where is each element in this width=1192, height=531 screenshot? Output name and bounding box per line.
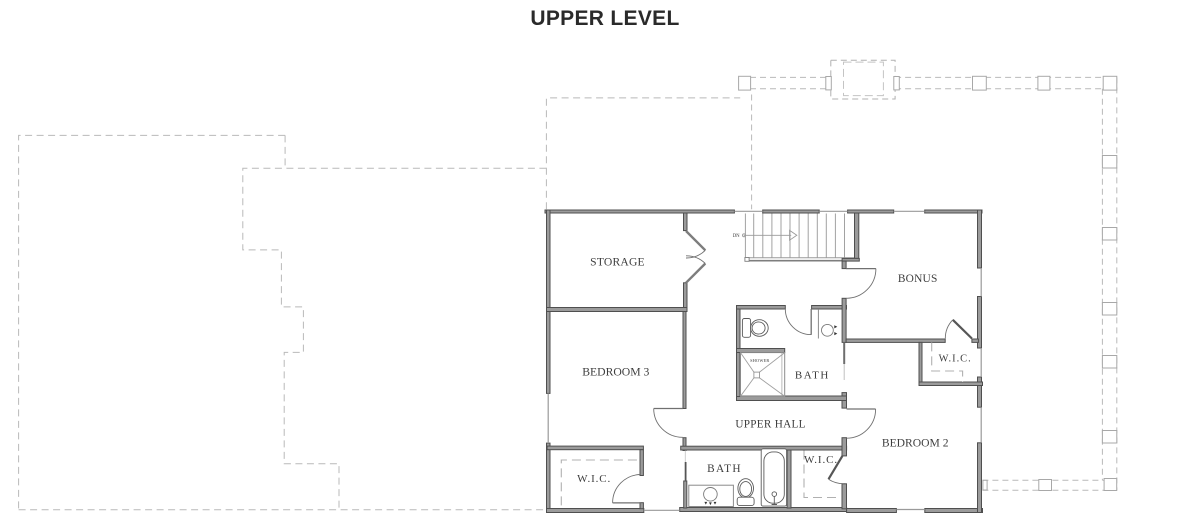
svg-text:W.I.C.: W.I.C. <box>804 454 838 466</box>
svg-text:BATH: BATH <box>707 463 742 475</box>
svg-text:SHOWER: SHOWER <box>750 358 769 363</box>
svg-text:W.I.C.: W.I.C. <box>577 473 611 485</box>
svg-text:UPPER HALL: UPPER HALL <box>735 418 805 430</box>
svg-text:BEDROOM 2: BEDROOM 2 <box>882 436 949 449</box>
svg-text:BATH: BATH <box>795 370 830 382</box>
svg-text:UPPER LEVEL: UPPER LEVEL <box>530 7 679 30</box>
svg-text:STORAGE: STORAGE <box>590 255 645 268</box>
svg-text:DN: DN <box>733 234 740 239</box>
svg-text:BONUS: BONUS <box>898 273 938 285</box>
svg-text:BEDROOM 3: BEDROOM 3 <box>582 366 649 379</box>
svg-text:W.I.C.: W.I.C. <box>939 353 972 364</box>
